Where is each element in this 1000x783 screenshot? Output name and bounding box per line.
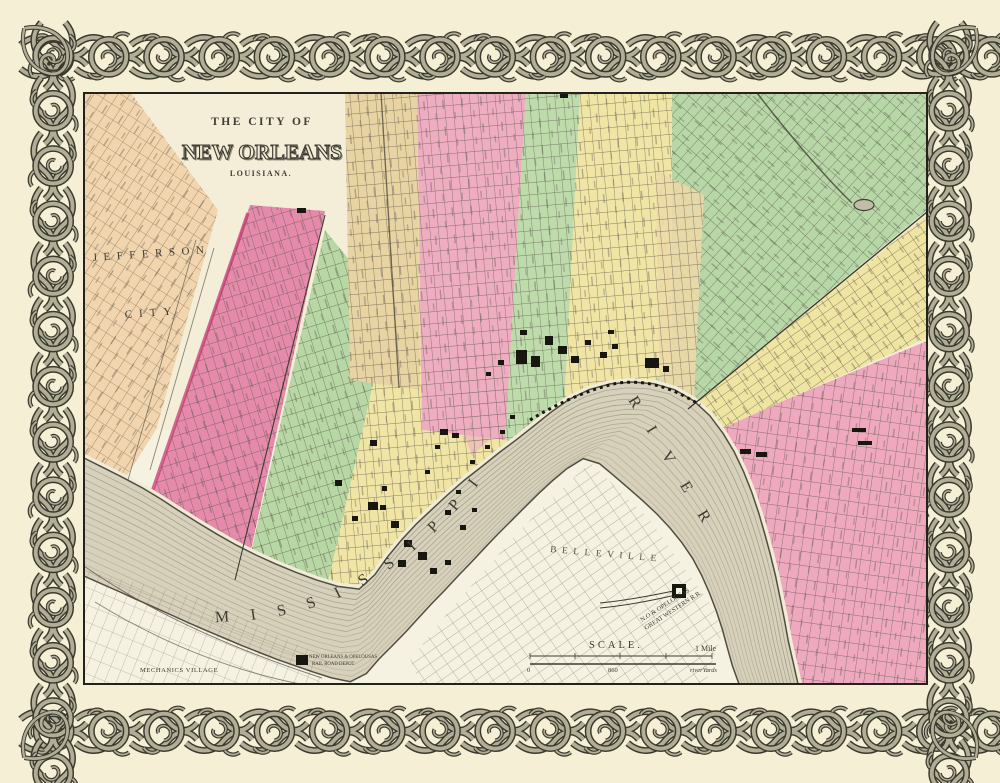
svg-text:NEW ORLEANS: NEW ORLEANS: [182, 140, 342, 164]
svg-text:0: 0: [527, 667, 530, 674]
svg-text:NEW ORLEANS & OPELOUSAS: NEW ORLEANS & OPELOUSAS: [309, 655, 377, 660]
svg-text:1 Mile: 1 Mile: [695, 644, 717, 653]
svg-text:SCALE.: SCALE.: [589, 640, 643, 651]
svg-text:MECHANICS VILLAGE: MECHANICS VILLAGE: [140, 667, 218, 674]
svg-text:860: 860: [608, 667, 618, 674]
svg-text:riverYards: riverYards: [690, 667, 717, 674]
svg-text:THE CITY OF: THE CITY OF: [211, 116, 313, 128]
svg-text:LOUISIANA.: LOUISIANA.: [230, 169, 292, 178]
svg-text:RAIL ROAD DEPOT: RAIL ROAD DEPOT: [312, 662, 355, 667]
